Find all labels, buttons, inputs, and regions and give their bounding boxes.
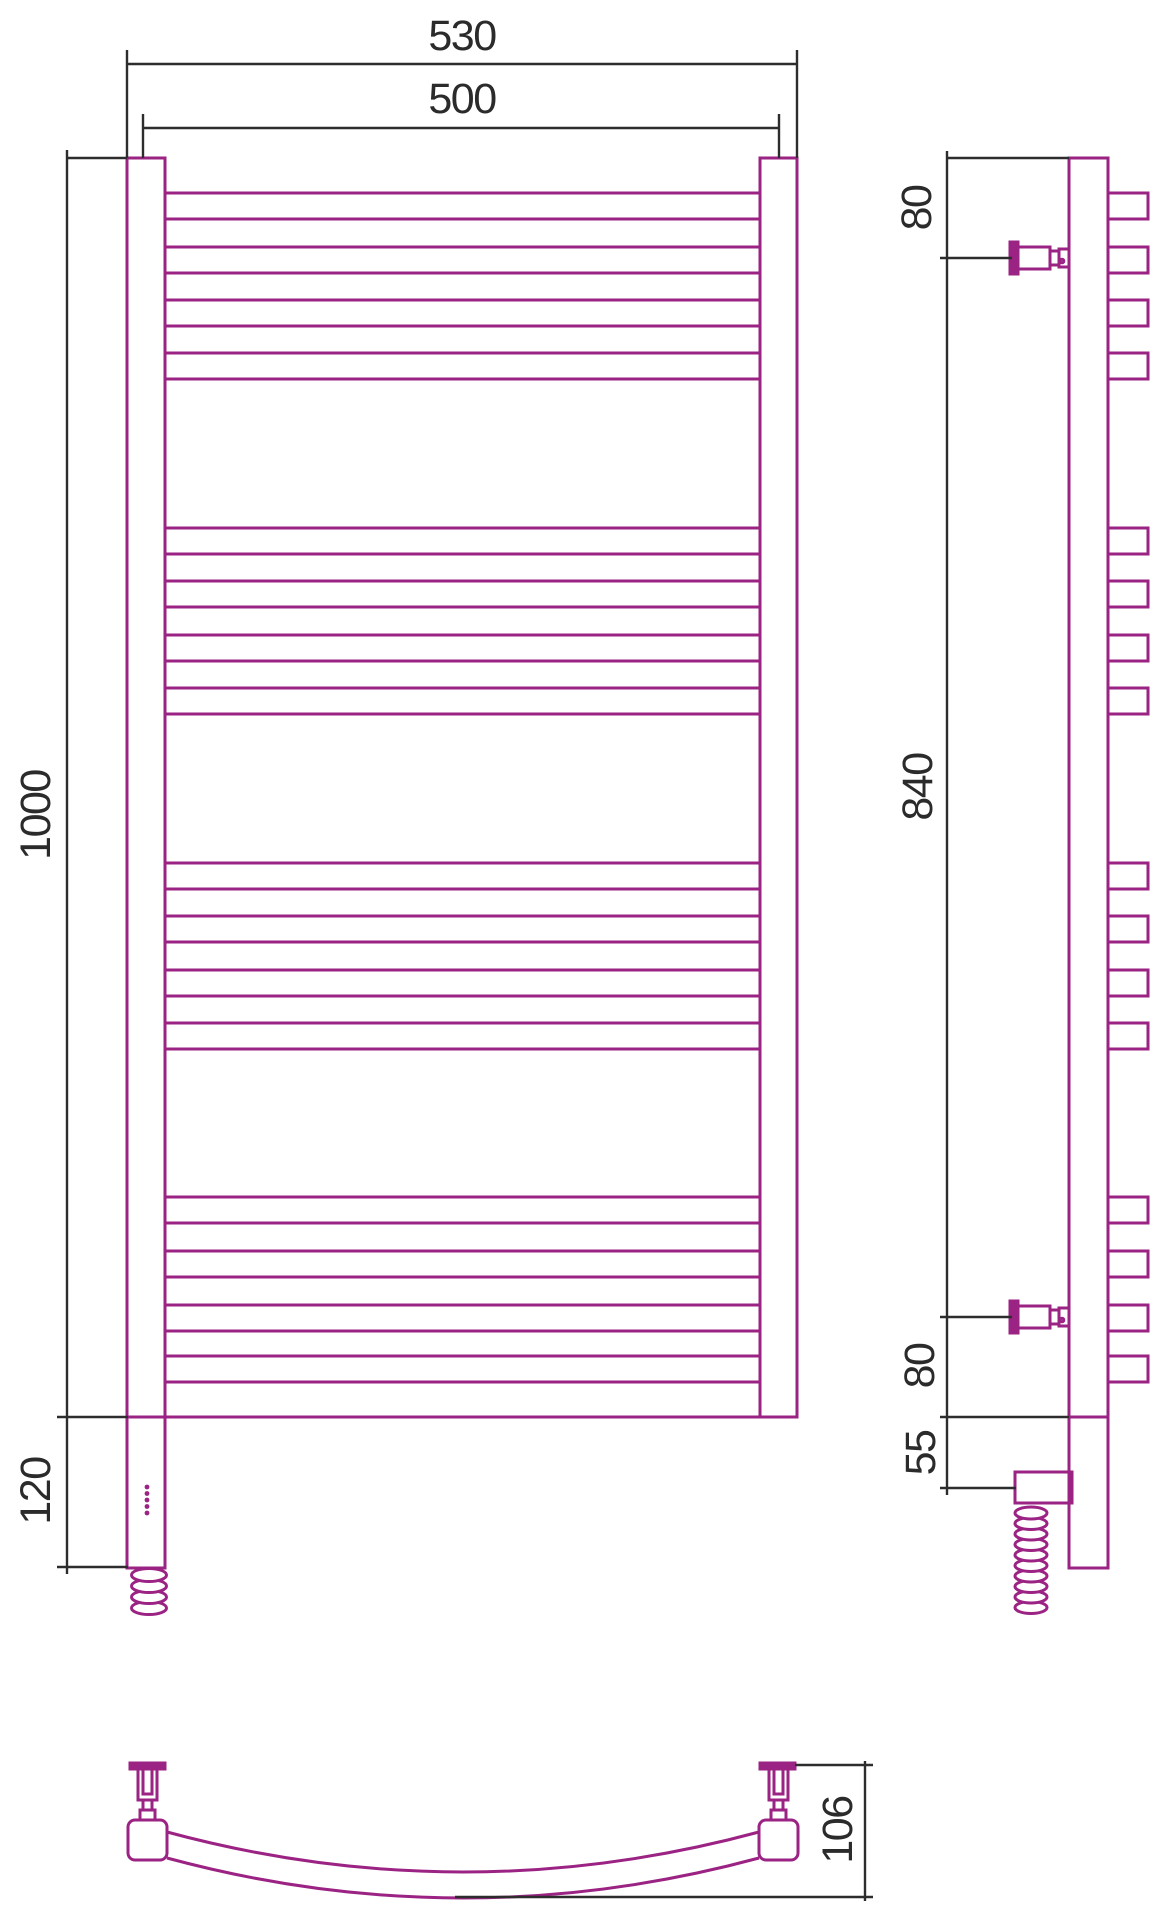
rung-side — [1108, 528, 1148, 554]
rung-front — [165, 863, 760, 889]
rung-side — [1108, 353, 1148, 379]
rung-arc-upper-edge — [167, 1832, 759, 1872]
rung-side — [1108, 247, 1148, 273]
indicator-dot — [145, 1504, 150, 1509]
rung-side — [1108, 1251, 1148, 1277]
label-heater-section-height: 120 — [12, 1457, 60, 1525]
front-power-cable-coil — [132, 1569, 167, 1615]
bracket-collar — [1059, 1308, 1069, 1326]
bottom-left-fastener — [130, 1763, 165, 1820]
fastener-foot — [771, 1810, 786, 1820]
rung-side — [1108, 300, 1148, 326]
heater-housing-box — [1015, 1472, 1072, 1503]
side-view — [1010, 158, 1148, 1614]
rung-front — [165, 1305, 760, 1331]
rung-side — [1108, 1023, 1148, 1049]
fastener-foot — [140, 1810, 155, 1820]
label-rail-height: 1000 — [12, 770, 60, 860]
rung-front — [165, 916, 760, 942]
drawing-canvas: 530 500 1000 120 80 840 80 55 106 — [0, 0, 1170, 1920]
rung-side — [1108, 635, 1148, 661]
rung-side — [1108, 863, 1148, 889]
front-right-post — [760, 158, 797, 1417]
bottom-right-post-block — [759, 1820, 798, 1860]
label-axis-width: 500 — [428, 75, 496, 123]
label-top-bracket-offset: 80 — [893, 185, 941, 230]
rung-side — [1108, 916, 1148, 942]
bracket-collar — [1059, 249, 1069, 267]
fastener-stem-inner — [143, 1769, 152, 1794]
dimension-lines — [57, 50, 1069, 1901]
rung-front — [165, 247, 760, 273]
rung-arc-lower-edge — [167, 1858, 759, 1898]
rung-side — [1108, 1197, 1148, 1223]
rung-front — [165, 353, 760, 379]
rung-front — [165, 635, 760, 661]
label-outer-width: 530 — [428, 12, 496, 60]
label-bracket-spacing: 840 — [894, 753, 942, 821]
rung-front — [165, 1356, 760, 1382]
rung-front — [165, 193, 760, 219]
rung-side — [1108, 1305, 1148, 1331]
side-rungs — [1108, 193, 1148, 1382]
indicator-dot — [145, 1511, 150, 1516]
bracket-pin — [1060, 259, 1064, 263]
rung-side — [1108, 193, 1148, 219]
rung-front — [165, 528, 760, 554]
label-depth: 106 — [814, 1796, 862, 1864]
label-heater-axis-offset: 55 — [897, 1430, 945, 1475]
rung-front — [165, 300, 760, 326]
front-left-post — [127, 158, 165, 1568]
front-rungs — [165, 193, 760, 1382]
rung-side — [1108, 688, 1148, 714]
fastener-stem-inner — [774, 1769, 783, 1794]
rung-front — [165, 1023, 760, 1049]
indicator-dot — [145, 1491, 150, 1496]
indicator-dots — [145, 1485, 150, 1516]
indicator-dot — [145, 1498, 150, 1503]
side-post-plate — [1069, 158, 1108, 1568]
rung-front — [165, 581, 760, 607]
label-bottom-bracket-offset: 80 — [896, 1343, 944, 1388]
wall-bracket — [1010, 242, 1069, 274]
rung-side — [1108, 1356, 1148, 1382]
rung-front — [165, 1197, 760, 1223]
rung-front — [165, 1251, 760, 1277]
side-power-cable-coil — [1015, 1507, 1047, 1614]
wall-brackets — [1010, 242, 1069, 1333]
cable-coil-loop — [1015, 1507, 1047, 1519]
front-view — [127, 158, 797, 1615]
rung-front — [165, 688, 760, 714]
cable-coil-loop — [132, 1569, 167, 1582]
bottom-left-post-block — [128, 1820, 167, 1860]
indicator-dot — [145, 1485, 150, 1490]
wall-bracket — [1010, 1301, 1069, 1333]
bottom-view — [128, 1763, 798, 1898]
bottom-right-fastener — [760, 1763, 795, 1820]
rung-side — [1108, 970, 1148, 996]
bracket-body — [1018, 247, 1050, 269]
bracket-body — [1018, 1306, 1050, 1328]
rung-front — [165, 970, 760, 996]
rung-side — [1108, 581, 1148, 607]
bracket-pin — [1060, 1318, 1064, 1322]
